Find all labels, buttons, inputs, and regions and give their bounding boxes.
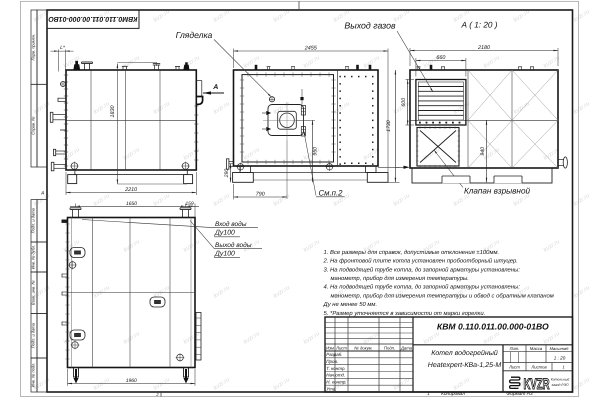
- svg-text:660: 660: [436, 55, 445, 61]
- svg-text:2. На фронтовой плите котла ус: 2. На фронтовой плите котла установлен п…: [323, 258, 518, 265]
- svg-text:Нач.отд.: Нач.отд.: [326, 373, 345, 378]
- svg-text:Выход воды: Выход воды: [215, 242, 252, 249]
- svg-text:Котел водогрейный: Котел водогрейный: [431, 349, 498, 357]
- svg-text:Подп. и дата: Подп. и дата: [30, 208, 35, 234]
- svg-text:Лист: Лист: [508, 364, 520, 369]
- svg-text:Перв. примен.: Перв. примен.: [30, 34, 35, 61]
- svg-text:манометр, прибор для измерения: манометр, прибор для измерения температу…: [331, 292, 554, 299]
- svg-text:5. *Размер уточняется в зависи: 5. *Размер уточняется в зависимости от м…: [324, 310, 486, 317]
- svg-text:Инв. № дубл.: Инв. № дубл.: [30, 245, 35, 270]
- svg-text:940: 940: [480, 147, 486, 156]
- svg-text:Изм: Изм: [326, 346, 334, 351]
- svg-text:Инв. № подл.: Инв. № подл.: [30, 363, 35, 388]
- svg-text:См.п.2: См.п.2: [319, 188, 344, 197]
- svg-text:КВМ 0.110.011.00.000-01ВО: КВМ 0.110.011.00.000-01ВО: [437, 322, 549, 332]
- svg-text:Подп. и дата: Подп. и дата: [30, 322, 35, 348]
- svg-text:600: 600: [401, 98, 407, 107]
- svg-text:Гляделка: Гляделка: [176, 30, 213, 40]
- svg-text:Т. контр.: Т. контр.: [326, 366, 345, 371]
- svg-text:№ докум.: № докум.: [354, 346, 372, 351]
- svg-text:Ду100: Ду100: [214, 229, 235, 236]
- svg-text:2455: 2455: [304, 45, 318, 51]
- svg-text:Масштаб: Масштаб: [550, 346, 569, 351]
- svg-text:Подп.: Подп.: [384, 346, 395, 351]
- svg-text:290: 290: [224, 169, 230, 179]
- svg-text:КВМ0.110.011.00.000-01ВО: КВМ0.110.011.00.000-01ВО: [48, 15, 138, 22]
- svg-text:Взам. инв. №: Взам. инв. №: [30, 280, 35, 305]
- svg-text:Клапан взрывной: Клапан взрывной: [464, 187, 531, 196]
- svg-text:Справ. №: Справ. №: [30, 116, 35, 135]
- svg-text:3. На подводящей трубе котла,: 3. На подводящей трубе котла, до запорно…: [324, 266, 521, 273]
- svg-text:Разраб.: Разраб.: [326, 352, 342, 357]
- svg-text:Лит.: Лит.: [509, 346, 520, 351]
- svg-text:Лист: Лист: [335, 346, 347, 351]
- svg-text:Масса: Масса: [530, 346, 543, 351]
- svg-text:1650: 1650: [126, 201, 137, 207]
- svg-text:Формат А3: Формат А3: [506, 391, 533, 397]
- svg-text:1960: 1960: [126, 378, 137, 384]
- svg-text:4. На подводящей трубе котла,: 4. На подводящей трубе котла, до запорно…: [324, 284, 521, 291]
- svg-text:Н. контр.: Н. контр.: [326, 380, 346, 385]
- svg-text:Heatexpert-КВа-1,25-М: Heatexpert-КВа-1,25-М: [428, 362, 502, 369]
- svg-text:1: 1: [562, 364, 564, 369]
- svg-text:Котельный: Котельный: [551, 377, 570, 381]
- svg-text:1 : 20: 1 : 20: [554, 356, 566, 361]
- svg-text:1730: 1730: [386, 120, 392, 132]
- svg-text:Пров.: Пров.: [326, 359, 338, 364]
- svg-text:А: А: [40, 191, 45, 197]
- svg-text:950: 950: [313, 147, 319, 156]
- svg-text:Вход воды: Вход воды: [215, 221, 247, 228]
- svg-text:А ( 1: 20 ): А ( 1: 20 ): [461, 21, 498, 30]
- svg-text:Выход газов: Выход газов: [344, 21, 396, 31]
- svg-text:А: А: [212, 84, 218, 91]
- svg-text:2210: 2210: [124, 187, 137, 193]
- svg-text:159: 159: [185, 201, 194, 207]
- svg-text:завод РЭП: завод РЭП: [551, 383, 569, 387]
- svg-text:Дата: Дата: [400, 346, 413, 351]
- svg-text:Утв.: Утв.: [326, 386, 336, 391]
- svg-text:790: 790: [256, 191, 265, 197]
- svg-text:Листов: Листов: [530, 364, 547, 369]
- svg-text:1. Все размеры для справок, до: 1. Все размеры для справок, допустимые о…: [324, 249, 500, 256]
- svg-text:Копировал: Копировал: [441, 391, 465, 397]
- svg-text:2180: 2180: [477, 45, 490, 51]
- svg-text:манометр, прибор для измерения: манометр, прибор для измерения температу…: [331, 275, 469, 282]
- svg-text:Ду100: Ду100: [214, 250, 235, 257]
- svg-text:Ду не менее 50 мм.: Ду не менее 50 мм.: [323, 301, 378, 308]
- svg-text:1830: 1830: [110, 106, 116, 118]
- svg-text:KVZR: KVZR: [524, 376, 550, 393]
